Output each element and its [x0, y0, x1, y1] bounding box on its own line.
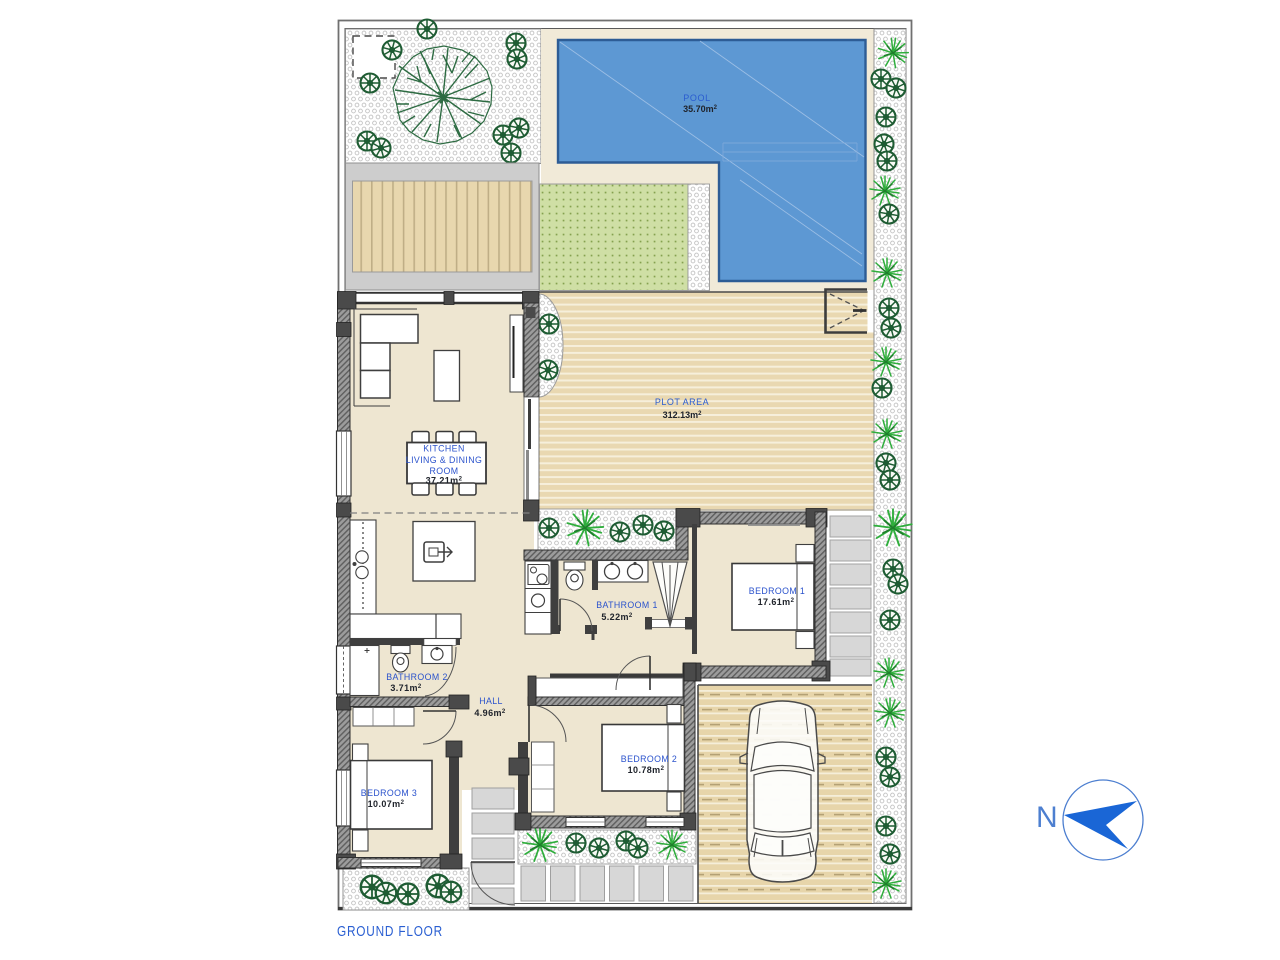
- svg-text:BATHROOM 2: BATHROOM 2: [386, 672, 448, 682]
- svg-text:POOL: POOL: [683, 93, 710, 103]
- svg-text:ROOM: ROOM: [430, 466, 459, 476]
- svg-text:35.70m2: 35.70m2: [683, 104, 718, 114]
- svg-text:3.71m2: 3.71m2: [390, 683, 422, 693]
- svg-text:HALL: HALL: [479, 696, 503, 706]
- svg-text:BEDROOM 2: BEDROOM 2: [621, 754, 677, 764]
- svg-text:KITCHEN: KITCHEN: [423, 444, 464, 454]
- svg-text:312.13m2: 312.13m2: [663, 410, 703, 420]
- svg-text:PLOT AREA: PLOT AREA: [655, 397, 709, 407]
- svg-text:BATHROOM 1: BATHROOM 1: [596, 600, 658, 610]
- svg-text:LIVING & DINING: LIVING & DINING: [406, 455, 482, 465]
- svg-text:BEDROOM 1: BEDROOM 1: [749, 586, 805, 596]
- svg-text:N: N: [1036, 801, 1058, 834]
- svg-text:GROUND FLOOR: GROUND FLOOR: [337, 923, 443, 940]
- svg-text:4.96m2: 4.96m2: [474, 708, 506, 718]
- svg-text:10.07m2: 10.07m2: [368, 799, 405, 809]
- svg-text:10.78m2: 10.78m2: [628, 765, 665, 775]
- svg-text:17.61m2: 17.61m2: [758, 597, 795, 607]
- svg-text:BEDROOM 3: BEDROOM 3: [361, 788, 417, 798]
- svg-text:5.22m2: 5.22m2: [601, 612, 633, 622]
- svg-text:37.21m2: 37.21m2: [426, 476, 463, 486]
